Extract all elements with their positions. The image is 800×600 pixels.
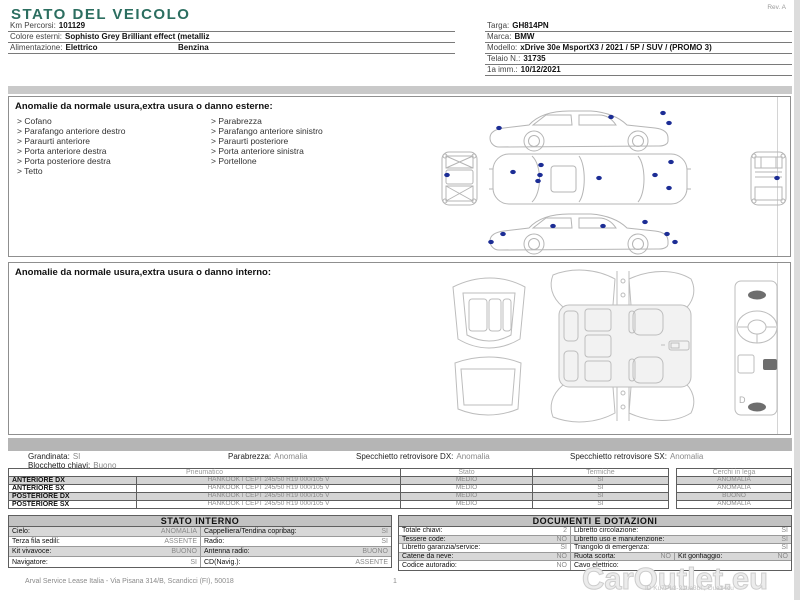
field-cell: Codice autoradio:NO: [399, 561, 571, 570]
field-value: Sophisto Grey Brilliant effect (metalliz: [65, 32, 209, 41]
status-grandinata: Grandinata:SI: [28, 452, 80, 461]
list-item: Porta anteriore destra: [17, 146, 125, 156]
revision-label: Rev. A: [767, 4, 786, 11]
status-value: Anomalia: [670, 452, 703, 461]
tyre-stato: MEDIO: [401, 501, 533, 509]
table-row: ANOMALIA: [677, 485, 792, 493]
page-number: 1: [393, 578, 397, 585]
divider-band: [8, 438, 792, 451]
status-value: SI: [73, 452, 81, 461]
field-cell: Terza fila sedili:ASSENTE: [9, 537, 201, 546]
field-cell: Libretto circolazione:SI: [571, 527, 791, 535]
table-row: POSTERIORE SX HANKOOK I CEPT 245/50 R19 …: [9, 501, 669, 509]
field-label: Modello:: [485, 43, 517, 52]
field-cell: Tessere code:NO: [399, 536, 571, 544]
field-label: Libretto uso e manutenzione:: [574, 536, 664, 543]
field-label: Telaio N.:: [485, 54, 520, 63]
tyre-termiche: SI: [533, 485, 669, 493]
panel-row: Cielo:ANOMALIA Cappelliera/Tendina copri…: [9, 527, 391, 537]
tyre-table: Pneumatico Stato Termiche ANTERIORE DX H…: [8, 468, 669, 509]
field-cell: Libretto garanzia/service:SI: [399, 544, 571, 552]
panel-row: Navigatore:SI CD(Navig.):ASSENTE: [9, 557, 391, 567]
cerchi-value: ANOMALIA: [677, 477, 792, 485]
tyre-stato: MEDIO: [401, 485, 533, 493]
field-cell: Radio:SI: [201, 537, 391, 546]
field-label: Antenna radio:: [204, 548, 250, 555]
exterior-anomalies-section: Anomalie da normale usura,extra usura o …: [8, 96, 791, 257]
list-item: Portellone: [211, 156, 323, 166]
field-cell: Ruota scorta:NO: [571, 553, 675, 561]
cerchi-value: ANOMALIA: [677, 501, 792, 509]
field-label: Cielo:: [12, 528, 30, 535]
tyre-termiche: SI: [533, 501, 669, 509]
id-watermark: ID Ku7Pu3-21ua3bI ; Oua14cu: [645, 585, 734, 592]
field-value: SI: [560, 544, 567, 551]
field-value: Elettrico: [65, 43, 97, 52]
footer-company-address: Arval Service Lease Italia - Via Pisana …: [25, 578, 234, 585]
field-value: ASSENTE: [355, 559, 388, 566]
tyre-spec: HANKOOK I CEPT 245/50 R19 000/105 V: [137, 477, 401, 485]
field-label: 1a imm.:: [485, 65, 518, 74]
vehicle-info-left: Km Percorsi:101129 Colore esterni:Sophis…: [8, 21, 455, 54]
status-label: Grandinata:: [28, 452, 70, 461]
tyre-stato: MEDIO: [401, 477, 533, 485]
status-specchietto-sx: Specchietto retrovisore SX:Anomalia: [570, 452, 703, 461]
field-value: SI: [190, 559, 197, 566]
field-value: 101129: [59, 21, 85, 30]
status-value: Anomalia: [456, 452, 489, 461]
table-row: BUONO: [677, 493, 792, 501]
info-row-immatricolazione: 1a imm.:10/12/2021: [485, 65, 792, 76]
field-value: ASSENTE: [164, 538, 197, 545]
field-cell: Triangolo di emergenza:SI: [571, 544, 791, 552]
interior-damage-markers: [748, 291, 777, 412]
field-cell: Cappelliera/Tendina copribag:SI: [201, 527, 391, 536]
field-value: 10/12/2021: [521, 65, 561, 74]
list-item: Paraurti posteriore: [211, 136, 323, 146]
field-value: SI: [781, 527, 788, 534]
info-row-km: Km Percorsi:101129: [8, 21, 455, 32]
field-label: Cappelliera/Tendina copribag:: [204, 528, 297, 535]
field-value: BMW: [514, 32, 534, 41]
field-label: Navigatore:: [12, 559, 48, 566]
status-parabrezza: Parabrezza:Anomalia: [228, 452, 308, 461]
status-value: Anomalia: [274, 452, 307, 461]
panel-row: Tessere code:NO Libretto uso e manutenzi…: [399, 536, 791, 545]
field-cell: Cielo:ANOMALIA: [9, 527, 201, 536]
field-label: CD(Navig.):: [204, 559, 241, 566]
field-value: GH814PN: [512, 21, 548, 30]
field-value-secondary: Benzina: [178, 43, 209, 53]
list-item: Tetto: [17, 166, 125, 176]
field-value: xDrive 30e MsportX3 / 2021 / 5P / SUV / …: [520, 43, 711, 52]
field-cell: Totale chiavi:2: [399, 527, 571, 535]
status-label: Specchietto retrovisore DX:: [356, 452, 453, 461]
list-item: Paraurti anteriore: [17, 136, 125, 146]
field-value: ANOMALIA: [161, 528, 197, 535]
field-label: Kit gonfiaggio:: [678, 553, 722, 560]
divider-band: [8, 86, 792, 94]
list-item: Parabrezza: [211, 116, 323, 126]
tyre-position: POSTERIORE DX: [9, 493, 137, 501]
exterior-car-diagrams: [433, 99, 793, 255]
field-cell: Libretto uso e manutenzione:SI: [571, 536, 791, 544]
section-title: Anomalie da normale usura,extra usura o …: [15, 101, 273, 112]
field-label: Libretto garanzia/service:: [402, 544, 480, 551]
table-row: ANOMALIA: [677, 477, 792, 485]
field-value: SI: [381, 538, 388, 545]
table-row: POSTERIORE DX HANKOOK I CEPT 245/50 R19 …: [9, 493, 669, 501]
column-header-cerchi: Cerchi in lega: [677, 469, 792, 477]
alloy-wheels-table: Cerchi in lega ANOMALIA ANOMALIA BUONO A…: [676, 468, 792, 509]
field-value: SI: [381, 528, 388, 535]
column-header-termiche: Termiche: [533, 469, 669, 477]
list-item: Porta posteriore destra: [17, 156, 125, 166]
field-label: Alimentazione:: [8, 43, 62, 52]
field-label: Libretto circolazione:: [574, 527, 638, 534]
field-label: Catene da neve:: [402, 553, 453, 560]
field-value: BUONO: [362, 548, 388, 555]
tyre-stato: MEDIO: [401, 493, 533, 501]
field-label: Terza fila sedili:: [12, 538, 60, 545]
field-value: 31735: [523, 54, 545, 63]
panel-row: Totale chiavi:2 Libretto circolazione:SI: [399, 527, 791, 536]
info-row-marca: Marca:BMW: [485, 32, 792, 43]
section-title: Anomalie da normale usura,extra usura o …: [15, 267, 271, 278]
field-label: Triangolo di emergenza:: [574, 544, 649, 551]
field-label: Kit vivavoce:: [12, 548, 51, 555]
vehicle-info-right: Targa:GH814PN Marca:BMW Modello:xDrive 3…: [485, 21, 792, 76]
field-label: Marca:: [485, 32, 511, 41]
page-edge: [794, 0, 800, 600]
field-label: Totale chiavi:: [402, 527, 442, 534]
dashboard-gear-label: D: [739, 395, 746, 405]
info-row-telaio: Telaio N.:31735: [485, 54, 792, 65]
tyre-position: ANTERIORE DX: [9, 477, 137, 485]
field-label: Ruota scorta:: [574, 553, 616, 560]
list-item: Porta anteriore sinistra: [211, 146, 323, 156]
tyre-termiche: SI: [533, 493, 669, 501]
field-cell: Navigatore:SI: [9, 557, 201, 567]
field-value: NO: [557, 562, 568, 569]
table-row: ANTERIORE SX HANKOOK I CEPT 245/50 R19 0…: [9, 485, 669, 493]
tyre-position: ANTERIORE SX: [9, 485, 137, 493]
field-value: NO: [661, 553, 672, 560]
status-label: Parabrezza:: [228, 452, 271, 461]
field-label: Targa:: [485, 21, 509, 30]
tyre-spec: HANKOOK I CEPT 245/50 R19 000/105 V: [137, 493, 401, 501]
field-label: Km Percorsi:: [8, 21, 56, 30]
table-row: ANTERIORE DX HANKOOK I CEPT 245/50 R19 0…: [9, 477, 669, 485]
field-value: BUONO: [171, 548, 197, 555]
field-value: 2: [563, 527, 567, 534]
tyre-position: POSTERIORE SX: [9, 501, 137, 509]
stato-interno-panel: STATO INTERNO Cielo:ANOMALIA Cappelliera…: [8, 515, 392, 568]
panel-title: DOCUMENTI E DOTAZIONI: [399, 516, 791, 527]
field-value: NO: [557, 553, 568, 560]
exterior-anomalies-list-left: Cofano Parafango anteriore destro Paraur…: [17, 116, 125, 176]
field-cell: CD(Navig.):ASSENTE: [201, 557, 391, 567]
cerchi-value: ANOMALIA: [677, 485, 792, 493]
field-label: Radio:: [204, 538, 224, 545]
status-label: Specchietto retrovisore SX:: [570, 452, 667, 461]
panel-row: Terza fila sedili:ASSENTE Radio:SI: [9, 537, 391, 547]
field-value: NO: [778, 553, 789, 560]
field-label: Tessere code:: [402, 536, 446, 543]
list-item: Parafango anteriore sinistro: [211, 126, 323, 136]
vehicle-status-report-page: STATO DEL VEICOLO Rev. A Km Percorsi:101…: [0, 0, 800, 600]
table-row: ANOMALIA: [677, 501, 792, 509]
field-label: Colore esterni:: [8, 32, 62, 41]
status-specchietto-dx: Specchietto retrovisore DX:Anomalia: [356, 452, 490, 461]
field-value: SI: [781, 536, 788, 543]
info-row-modello: Modello:xDrive 30e MsportX3 / 2021 / 5P …: [485, 43, 792, 54]
panel-title: STATO INTERNO: [9, 516, 391, 527]
list-item: Parafango anteriore destro: [17, 126, 125, 136]
panel-row: Kit vivavoce:BUONO Antenna radio:BUONO: [9, 547, 391, 557]
cerchi-value: BUONO: [677, 493, 792, 501]
list-item: Cofano: [17, 116, 125, 126]
interior-anomalies-section: Anomalie da normale usura,extra usura o …: [8, 262, 791, 435]
info-row-targa: Targa:GH814PN: [485, 21, 792, 32]
field-cell: Kit gonfiaggio:NO: [675, 553, 791, 561]
panel-row: Libretto garanzia/service:SI Triangolo d…: [399, 544, 791, 553]
column-header-stato: Stato: [401, 469, 533, 477]
table-header: Cerchi in lega: [677, 469, 792, 477]
field-cell: Antenna radio:BUONO: [201, 547, 391, 556]
tyre-spec: HANKOOK I CEPT 245/50 R19 000/105 V: [137, 501, 401, 509]
tyre-termiche: SI: [533, 477, 669, 485]
column-header-pneumatico: Pneumatico: [9, 469, 401, 477]
field-cell: Catene da neve:NO: [399, 553, 571, 561]
info-row-alimentazione: Alimentazione:ElettricoBenzina: [8, 43, 455, 54]
exterior-anomalies-list-right: Parabrezza Parafango anteriore sinistro …: [211, 116, 323, 166]
tyre-spec: HANKOOK I CEPT 245/50 R19 000/105 V: [137, 485, 401, 493]
field-label: Codice autoradio:: [402, 562, 457, 569]
field-cell: Kit vivavoce:BUONO: [9, 547, 201, 556]
tyre-table-header: Pneumatico Stato Termiche: [9, 469, 669, 477]
field-value: NO: [557, 536, 568, 543]
info-row-colore: Colore esterni:Sophisto Grey Brilliant e…: [8, 32, 455, 43]
field-value: SI: [781, 544, 788, 551]
interior-car-diagrams: D: [433, 265, 793, 431]
